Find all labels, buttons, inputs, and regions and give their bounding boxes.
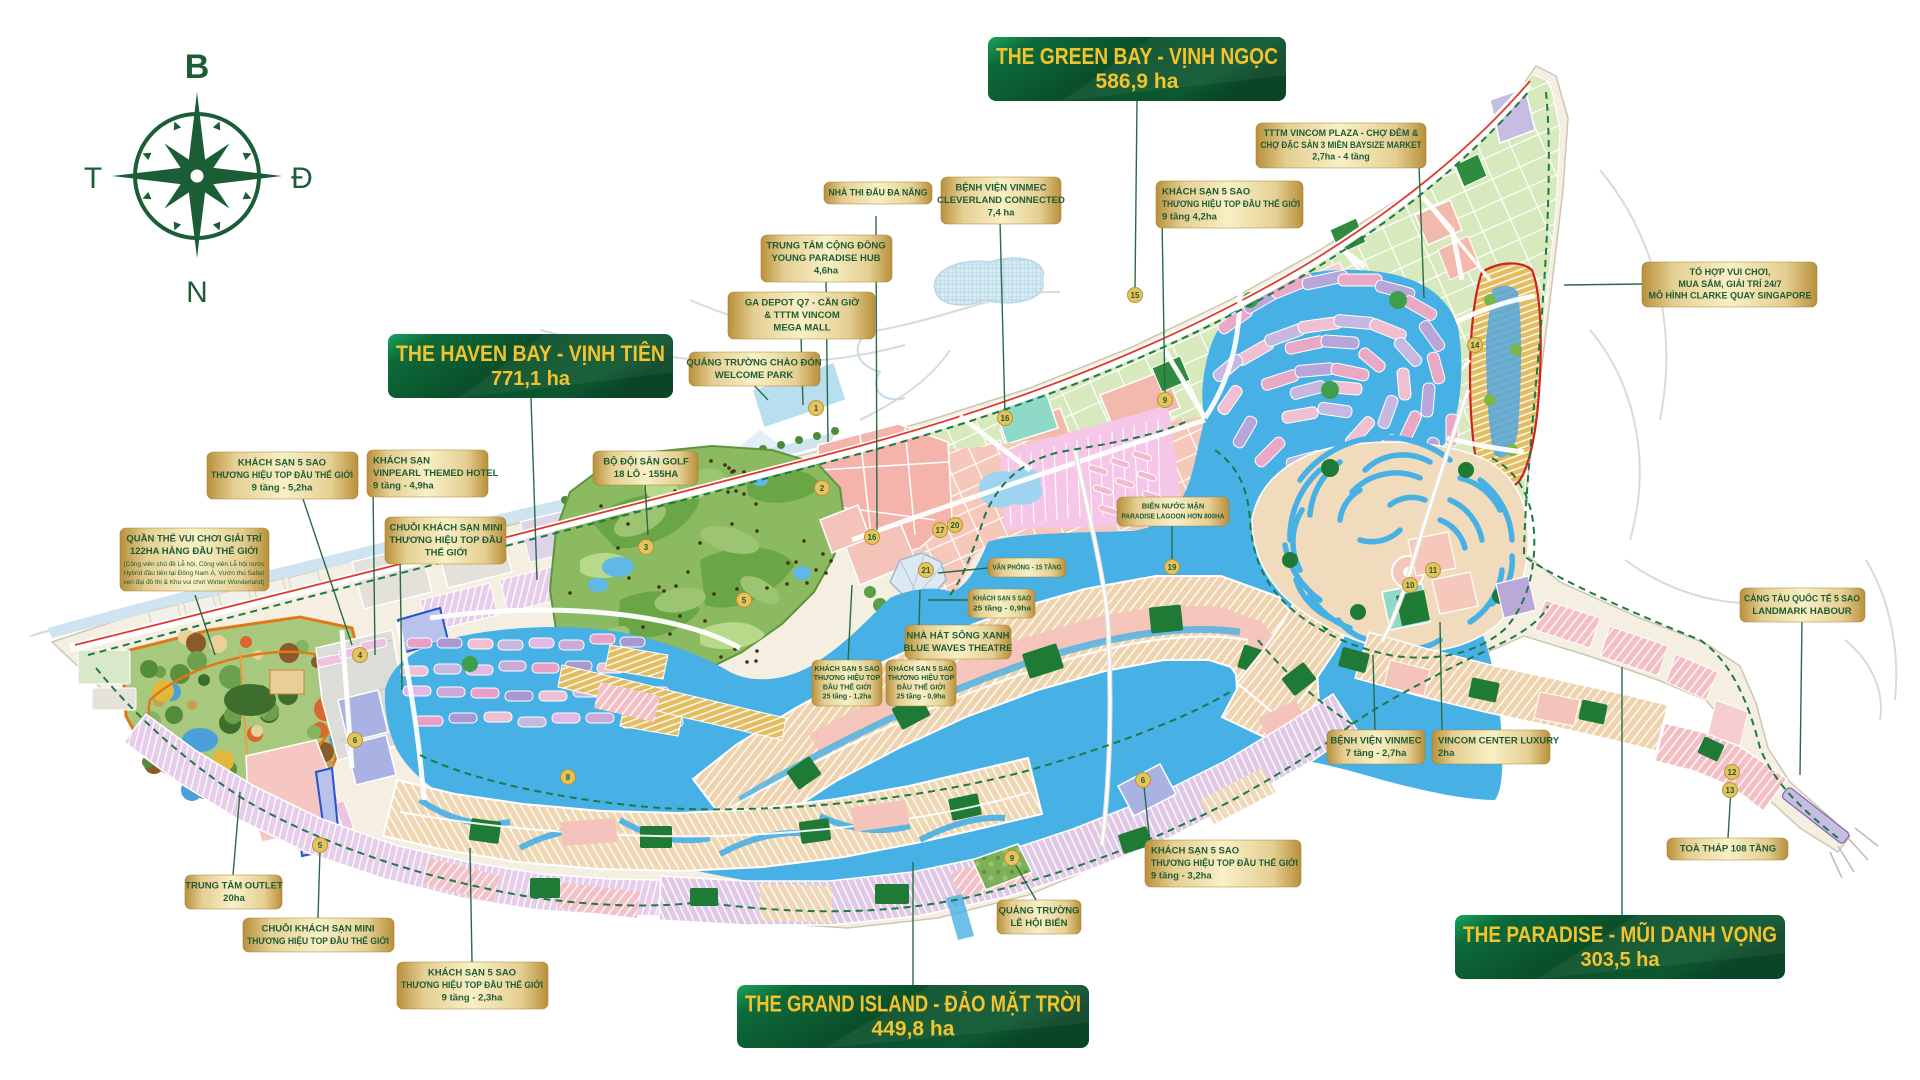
svg-text:QUẢNG TRƯỜNG: QUẢNG TRƯỜNG [999,904,1080,916]
svg-text:MEGA MALL: MEGA MALL [773,322,830,333]
svg-text:TRUNG TÂM OUTLET: TRUNG TÂM OUTLET [185,879,283,891]
svg-text:THƯƠNG HIỆU TOP ĐẦU: THƯƠNG HIỆU TOP ĐẦU [389,534,502,546]
svg-text:6: 6 [1141,776,1146,785]
svg-text:6: 6 [353,736,358,745]
svg-text:4,6ha: 4,6ha [814,265,839,276]
svg-text:19: 19 [1168,563,1177,572]
svg-text:16: 16 [1001,414,1010,423]
svg-text:THE PARADISE - MŨI DANH VỌNG: THE PARADISE - MŨI DANH VỌNG [1463,922,1777,947]
svg-text:BỆNH VIỆN VINMEC: BỆNH VIỆN VINMEC [1330,734,1421,746]
svg-text:TTTM VINCOM PLAZA - CHỢ ĐÊM &: TTTM VINCOM PLAZA - CHỢ ĐÊM & [1264,127,1419,138]
svg-text:KHÁCH SẠN 5 SAO: KHÁCH SẠN 5 SAO [889,664,955,673]
svg-text:ven đại đô thị & Khu vui chơi: ven đại đô thị & Khu vui chơi Winter Won… [124,579,265,586]
svg-text:KHÁCH SẠN 5 SAO: KHÁCH SẠN 5 SAO [815,664,881,673]
svg-text:4: 4 [358,651,363,660]
svg-text:20: 20 [951,521,960,530]
svg-text:5: 5 [318,841,323,850]
svg-text:NHÀ HÁT SÔNG XANH: NHÀ HÁT SÔNG XANH [907,629,1010,641]
svg-text:15: 15 [1131,291,1140,300]
svg-text:B: B [185,48,210,86]
svg-text:THE HAVEN BAY - VỊNH TIÊN: THE HAVEN BAY - VỊNH TIÊN [396,341,665,366]
svg-text:5: 5 [742,596,747,605]
svg-text:BIỂN NƯỚC MẶN: BIỂN NƯỚC MẶN [1142,502,1205,511]
svg-text:KHÁCH SẠN 5 SAO: KHÁCH SẠN 5 SAO [1151,845,1239,856]
svg-text:YOUNG PARADISE HUB: YOUNG PARADISE HUB [771,253,880,264]
svg-text:PARADISE LAGOON HƠN 800HA: PARADISE LAGOON HƠN 800HA [1122,511,1225,520]
svg-text:122HA HÀNG ĐẦU THẾ GIỚI: 122HA HÀNG ĐẦU THẾ GIỚI [130,545,258,557]
svg-text:25 tầng - 1,2ha: 25 tầng - 1,2ha [823,692,872,701]
svg-text:THƯƠNG HIỆU TOP: THƯƠNG HIỆU TOP [814,673,881,682]
svg-text:TRUNG TÂM CỘNG ĐỒNG: TRUNG TÂM CỘNG ĐỒNG [766,239,885,251]
svg-text:N: N [186,276,208,309]
svg-text:7,4 ha: 7,4 ha [988,207,1016,218]
svg-text:9: 9 [1163,396,1168,405]
svg-text:25 tầng - 0,9ha: 25 tầng - 0,9ha [973,603,1032,612]
svg-text:KHÁCH SẠN 5 SAO: KHÁCH SẠN 5 SAO [238,457,326,468]
svg-text:QUẦN THỂ VUI CHƠI GIẢI TRÍ: QUẦN THỂ VUI CHƠI GIẢI TRÍ [126,532,262,544]
svg-text:LANDMARK HABOUR: LANDMARK HABOUR [1752,606,1851,617]
svg-text:KHÁCH SẠN 5 SAO: KHÁCH SẠN 5 SAO [1162,186,1250,197]
svg-text:THE GRAND ISLAND - ĐẢO MẶT TRỜ: THE GRAND ISLAND - ĐẢO MẶT TRỜI [745,988,1081,1016]
svg-text:771,1 ha: 771,1 ha [491,368,571,390]
svg-text:MUA SẮM, GIẢI TRÍ 24/7: MUA SẮM, GIẢI TRÍ 24/7 [1678,278,1781,289]
svg-text:10: 10 [1406,581,1415,590]
svg-text:303,5 ha: 303,5 ha [1581,949,1661,971]
svg-text:CHUỖI KHÁCH SẠN MINI: CHUỖI KHÁCH SẠN MINI [262,922,375,934]
svg-text:WELCOME PARK: WELCOME PARK [715,370,794,381]
svg-text:BỘ ĐỘI SÂN GOLF: BỘ ĐỘI SÂN GOLF [603,455,689,467]
svg-text:1: 1 [814,404,819,413]
svg-text:CHỢ ĐẶC SẢN 3 MIỀN BAYSIZE MAR: CHỢ ĐẶC SẢN 3 MIỀN BAYSIZE MARKET [1261,139,1422,150]
svg-text:3: 3 [644,543,649,552]
svg-text:GA DEPOT Q7 - CẦN GIỜ: GA DEPOT Q7 - CẦN GIỜ [745,296,860,308]
svg-text:9: 9 [1010,854,1015,863]
svg-text:BỆNH VIỆN VINMEC: BỆNH VIỆN VINMEC [955,181,1046,193]
svg-text:Đ: Đ [291,162,313,195]
svg-text:TOÀ THÁP 108 TẦNG: TOÀ THÁP 108 TẦNG [1680,843,1776,854]
svg-text:9 tầng - 2,3ha: 9 tầng - 2,3ha [442,992,503,1003]
svg-text:9 tầng - 3,2ha: 9 tầng - 3,2ha [1151,870,1212,881]
svg-text:THƯƠNG HIỆU TOP ĐẦU THẾ GIỚI: THƯƠNG HIỆU TOP ĐẦU THẾ GIỚI [401,979,543,991]
svg-text:VINCOM CENTER LUXURY: VINCOM CENTER LUXURY [1438,735,1560,746]
svg-text:& TTTM VINCOM: & TTTM VINCOM [764,310,840,321]
svg-text:17: 17 [936,526,945,535]
svg-text:9 tầng - 5,2ha: 9 tầng - 5,2ha [252,482,313,493]
svg-text:25 tầng - 0,9ha: 25 tầng - 0,9ha [897,692,946,701]
svg-text:KHÁCH SẠN 5 SAO: KHÁCH SẠN 5 SAO [973,594,1031,603]
svg-text:21: 21 [922,566,931,575]
svg-text:CẢNG TÀU QUỐC TẾ 5 SAO: CẢNG TÀU QUỐC TẾ 5 SAO [1744,592,1860,604]
svg-text:586,9 ha: 586,9 ha [1096,70,1179,93]
svg-text:THƯƠNG HIỆU TOP ĐẦU THẾ GIỚI: THƯƠNG HIỆU TOP ĐẦU THẾ GIỚI [1151,857,1298,869]
svg-text:T: T [84,162,102,195]
svg-text:MÔ HÌNH CLARKE QUAY SINGAPORE: MÔ HÌNH CLARKE QUAY SINGAPORE [1648,290,1811,301]
svg-text:18 LỖ - 155HA: 18 LỖ - 155HA [614,468,679,480]
svg-text:QUẢNG TRƯỜNG CHÀO ĐÓN: QUẢNG TRƯỜNG CHÀO ĐÓN [686,356,821,368]
svg-text:NHÀ THI ĐẤU ĐA NĂNG: NHÀ THI ĐẤU ĐA NĂNG [829,187,928,198]
svg-text:12: 12 [1728,768,1737,777]
svg-text:CHUỖI KHÁCH SẠN MINI: CHUỖI KHÁCH SẠN MINI [390,521,503,533]
svg-text:THƯƠNG HIỆU TOP ĐẦU THẾ GIỚI: THƯƠNG HIỆU TOP ĐẦU THẾ GIỚI [1162,198,1300,210]
svg-text:449,8 ha: 449,8 ha [872,1017,955,1040]
svg-text:(Công viên chủ đề Lễ hội, Công: (Công viên chủ đề Lễ hội, Công viên Lễ h… [124,559,266,568]
svg-text:THƯƠNG HIỆU TOP: THƯƠNG HIỆU TOP [888,673,955,682]
svg-text:13: 13 [1726,786,1735,795]
svg-text:Hybrid đầu tiên tại Đông Nam Á: Hybrid đầu tiên tại Đông Nam Á, Vườn thú… [124,568,265,577]
svg-text:8: 8 [566,773,571,782]
svg-text:BLUE WAVES THEATRE: BLUE WAVES THEATRE [904,643,1013,654]
svg-text:THẾ GIỚI: THẾ GIỚI [425,546,467,558]
svg-text:THƯƠNG HIỆU TOP ĐẦU THẾ GIỚI: THƯƠNG HIỆU TOP ĐẦU THẾ GIỚI [247,935,389,947]
svg-text:14: 14 [1471,341,1480,350]
svg-text:CLEVERLAND CONNECTED: CLEVERLAND CONNECTED [937,195,1065,206]
svg-text:7 tầng - 2,7ha: 7 tầng - 2,7ha [1346,748,1407,759]
svg-text:20ha: 20ha [223,893,245,904]
svg-text:2ha: 2ha [1438,748,1455,759]
svg-text:LỄ HỘI BIỂN: LỄ HỘI BIỂN [1010,917,1067,929]
svg-text:THE GREEN BAY - VỊNH NGỌC: THE GREEN BAY - VỊNH NGỌC [996,43,1278,69]
svg-text:KHÁCH SẠN: KHÁCH SẠN [373,455,430,466]
svg-text:THƯƠNG HIỆU TOP ĐẦU THẾ GIỚI: THƯƠNG HIỆU TOP ĐẦU THẾ GIỚI [211,469,353,481]
svg-text:16: 16 [868,533,877,542]
svg-text:TỔ HỢP VUI CHƠI,: TỔ HỢP VUI CHƠI, [1690,266,1771,277]
svg-text:VINPEARL THEMED HOTEL: VINPEARL THEMED HOTEL [373,468,499,479]
svg-text:2,7ha - 4 tầng: 2,7ha - 4 tầng [1312,152,1370,162]
svg-text:11: 11 [1429,566,1438,575]
svg-text:2: 2 [820,484,825,493]
svg-text:KHÁCH SẠN 5 SAO: KHÁCH SẠN 5 SAO [428,967,516,978]
svg-text:9 tầng 4,2ha: 9 tầng 4,2ha [1162,211,1218,222]
svg-text:9 tầng - 4,9ha: 9 tầng - 4,9ha [373,480,434,491]
svg-text:VĂN PHÒNG - 15 TẦNG: VĂN PHÒNG - 15 TẦNG [993,562,1062,572]
